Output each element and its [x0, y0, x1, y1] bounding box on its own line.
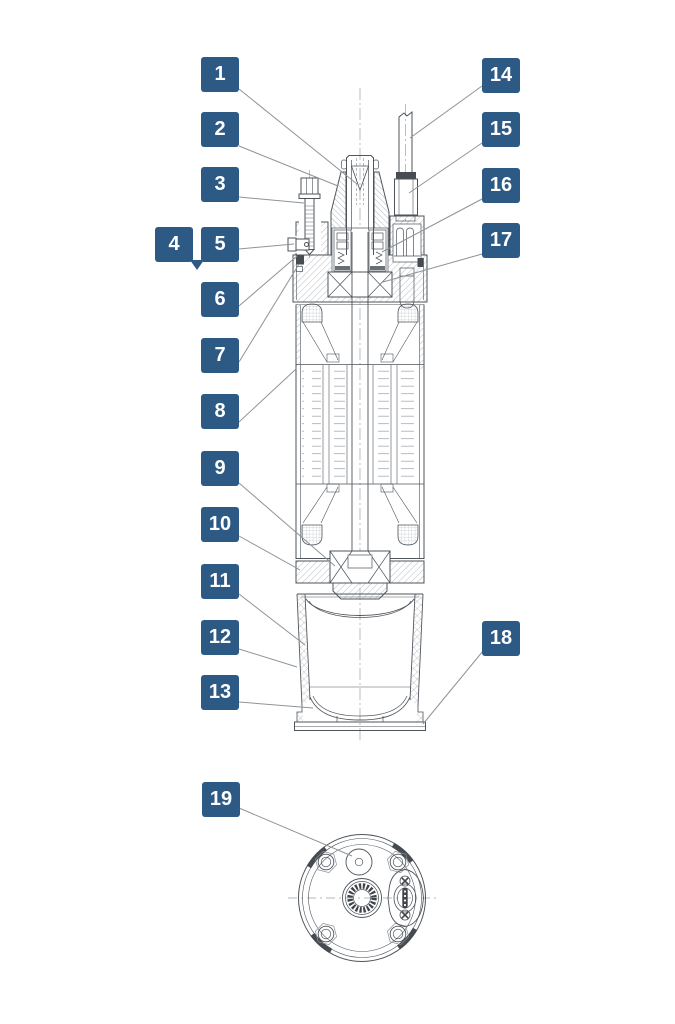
callout-6: 6 [201, 282, 239, 317]
pump-side-view [288, 88, 427, 742]
callout-15: 15 [482, 112, 520, 147]
callout-17: 17 [482, 223, 520, 258]
callout-4: 4 [155, 227, 193, 262]
callout-19: 19 [202, 782, 240, 817]
leader-line-8 [239, 369, 296, 422]
callout-18: 18 [482, 621, 520, 656]
callout-3: 3 [201, 167, 239, 202]
leader-line-19 [239, 808, 352, 856]
callout-10: 10 [201, 507, 239, 542]
leader-lines [239, 86, 483, 856]
callout-12: 12 [201, 620, 239, 655]
pump-bottom-view [288, 835, 437, 962]
leader-line-10 [239, 536, 300, 570]
leader-line-12 [239, 649, 297, 667]
callout-16: 16 [482, 168, 520, 203]
power-cable [395, 112, 418, 221]
leader-line-5 [239, 244, 294, 249]
leader-line-2 [239, 146, 338, 186]
callout-2: 2 [201, 112, 239, 147]
callout-13: 13 [201, 675, 239, 710]
leader-line-14 [410, 86, 482, 138]
leader-line-7 [239, 264, 299, 362]
callout-9: 9 [201, 451, 239, 486]
leader-line-3 [239, 197, 304, 203]
upper-bearing [328, 272, 392, 297]
callout-1: 1 [201, 57, 239, 92]
leader-line-9 [239, 483, 335, 566]
callout-11: 11 [201, 564, 239, 599]
leader-line-18 [423, 651, 483, 724]
leader-line-11 [239, 594, 305, 645]
leader-line-15 [409, 143, 482, 193]
callout-5: 5 [201, 227, 239, 262]
callout-14: 14 [482, 58, 520, 93]
callout-7: 7 [201, 338, 239, 373]
lower-bearing-housing [296, 551, 424, 599]
callout-8: 8 [201, 394, 239, 429]
cable-connector-boss [388, 870, 424, 927]
sensor-port [346, 849, 372, 875]
diagram-canvas: 1 2 3 4 5 6 7 8 9 10 11 12 13 14 15 16 1… [0, 0, 675, 1024]
pump-technical-drawing [0, 0, 675, 1024]
